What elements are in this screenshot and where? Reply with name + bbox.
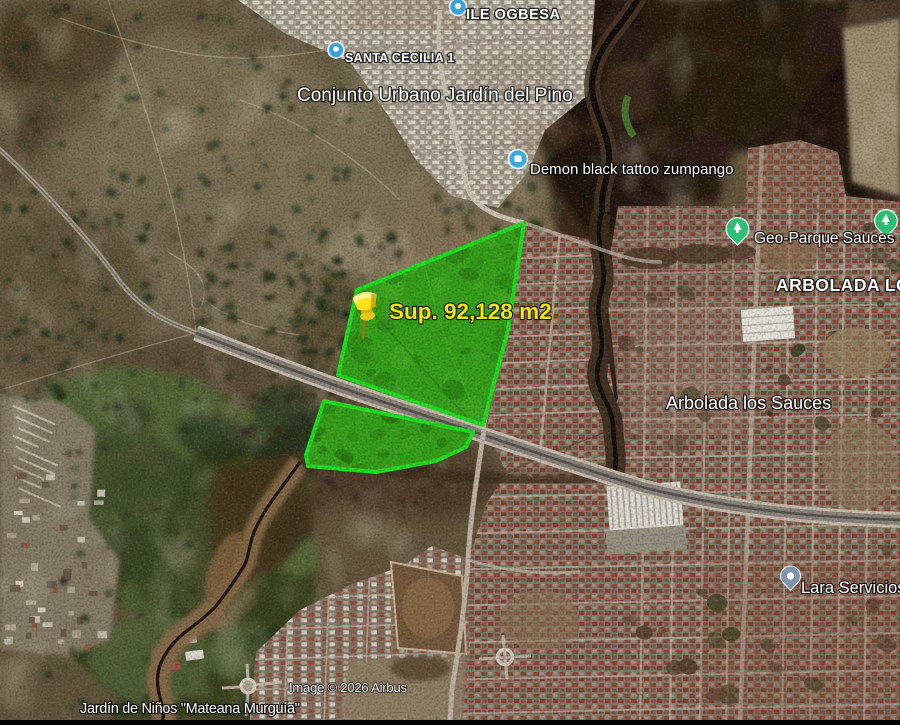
svg-text:ILE OGBESA: ILE OGBESA — [466, 7, 560, 23]
svg-text:Image © 2026 Airbus: Image © 2026 Airbus — [289, 680, 407, 695]
svg-text:Conjunto Urbano Jardín del Pin: Conjunto Urbano Jardín del Pino — [297, 85, 573, 106]
svg-text:Lara Servicios: Lara Servicios — [801, 579, 900, 597]
svg-text:ARBOLADA LOS: ARBOLADA LOS — [776, 275, 900, 295]
svg-text:Sup. 92,128 m2: Sup. 92,128 m2 — [389, 299, 552, 324]
svg-text:Demon black tattoo zumpango: Demon black tattoo zumpango — [530, 161, 733, 178]
svg-text:Jardín de Niños "Mateana Murgu: Jardín de Niños "Mateana Murguía" — [80, 701, 300, 717]
svg-text:SANTA CECILIA 1: SANTA CECILIA 1 — [345, 51, 455, 65]
svg-text:Arbolada los Sauces: Arbolada los Sauces — [666, 393, 831, 413]
svg-text:Geo-Parque Sauces: Geo-Parque Sauces — [754, 230, 895, 247]
